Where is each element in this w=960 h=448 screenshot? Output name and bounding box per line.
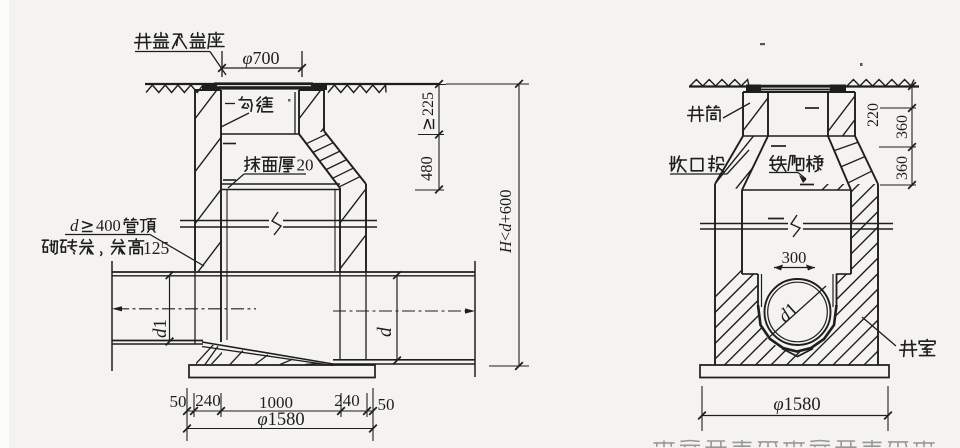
svg-text:50: 50 [170,392,187,411]
svg-text:φ700: φ700 [243,48,280,68]
svg-text:300: 300 [782,248,807,267]
svg-text:360: 360 [894,156,911,180]
svg-text:240: 240 [195,391,221,410]
svg-text:H<d+600: H<d+600 [496,189,515,254]
svg-text:125: 125 [143,238,170,258]
svg-text:240: 240 [334,391,360,410]
svg-text:360: 360 [894,115,911,139]
svg-text:225: 225 [420,92,437,116]
svg-text:20: 20 [297,156,314,175]
svg-text:d1: d1 [150,319,171,338]
svg-text:480: 480 [417,156,436,181]
svg-text:φ1580: φ1580 [773,395,820,415]
svg-text:d: d [70,216,79,235]
svg-text:d1: d1 [774,299,802,327]
svg-text:d: d [375,327,396,337]
svg-text:220: 220 [865,103,882,127]
svg-text:50: 50 [378,395,395,414]
svg-text:400: 400 [96,216,121,235]
svg-text:φ1580: φ1580 [257,410,304,430]
